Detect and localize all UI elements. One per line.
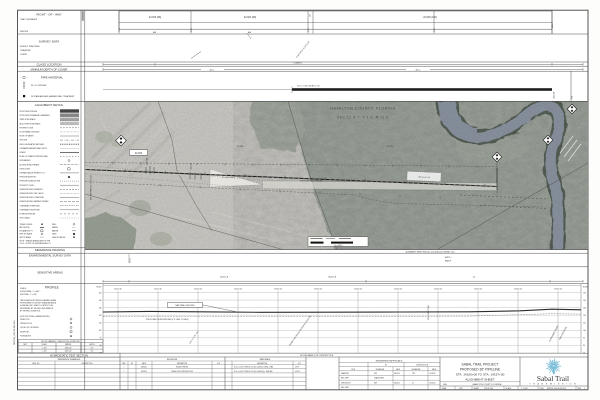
svg-text:TRACT NUMBERS: TRACT NUMBERS xyxy=(20,18,38,21)
svg-text:UNDERGROUND REPEATER: UNDERGROUND REPEATER xyxy=(20,188,44,191)
svg-text:USE:: USE: xyxy=(443,384,448,386)
svg-text:ALIGNMENT DETAIL: ALIGNMENT DETAIL xyxy=(35,103,64,107)
svg-text:ISSUED FOR BID: ISSUED FOR BID xyxy=(176,367,189,369)
svg-text:PROPERTY LINE 2: PROPERTY LINE 2 xyxy=(20,185,35,187)
svg-text:BLOCK DRAWING - TRENCH PLUG LO: BLOCK DRAWING - TRENCH PLUG LOCATIONS xyxy=(42,340,81,343)
svg-text:140: 140 xyxy=(99,300,102,302)
svg-text:14130+00: 14130+00 xyxy=(274,288,282,290)
svg-text:PROPOSED 36-IN PIPELINE: PROPOSED 36-IN PIPELINE xyxy=(300,181,323,183)
svg-text:MILEPOINT: MILEPOINT xyxy=(20,331,29,333)
svg-text:STREAM/RIVER/WETLAND LIMITS: STREAM/RIVER/WETLAND LIMITS xyxy=(20,147,48,150)
svg-text:130: 130 xyxy=(99,307,102,309)
svg-text:SABAL TRAIL PROJECT: SABAL TRAIL PROJECT xyxy=(462,363,499,367)
svg-text:14116+50: 14116+50 xyxy=(190,163,192,170)
svg-text:120: 120 xyxy=(583,315,586,317)
svg-text:SCALE: SCALE xyxy=(506,387,512,390)
svg-text:36 I.D. PIPELINE: 36 I.D. PIPELINE xyxy=(31,85,47,87)
svg-text:ANT MOUND: ANT MOUND xyxy=(20,226,31,229)
svg-text:HADDF: HADDF xyxy=(445,260,452,263)
svg-text:110: 110 xyxy=(99,323,102,325)
svg-text:PIPE STORAGE: PIPE STORAGE xyxy=(20,233,33,236)
svg-text:EDGE OF WATER: EDGE OF WATER xyxy=(20,135,35,138)
svg-text:14150+00: 14150+00 xyxy=(434,288,442,290)
svg-text:22,925: 22,925 xyxy=(387,146,394,148)
svg-text:36 in.: 36 in. xyxy=(415,69,421,71)
svg-text:SCALE:: SCALE: xyxy=(20,287,27,290)
svg-text:ELEV.: ELEV. xyxy=(97,287,102,289)
svg-text:4,971 LF: 4,971 LF xyxy=(295,371,300,373)
svg-text:HOLLOWAY ROAD: HOLLOWAY ROAD xyxy=(427,305,430,320)
svg-text:REFERENCE DRAWING: REFERENCE DRAWING xyxy=(35,248,65,252)
svg-text:130: 130 xyxy=(583,307,586,309)
svg-text:14145+00: 14145+00 xyxy=(394,288,402,290)
svg-text:PIPELINE MILEPOST: PIPELINE MILEPOST xyxy=(20,177,37,179)
svg-text:14125+00: 14125+00 xyxy=(234,288,242,290)
svg-text:RIGHT - OF - WAY: RIGHT - OF - WAY xyxy=(36,13,61,17)
svg-text:FENCES: FENCES xyxy=(20,31,29,33)
svg-text:MARSH: MARSH xyxy=(52,229,59,232)
svg-text:100: 100 xyxy=(583,330,586,332)
svg-text:22,923 (98): 22,923 (98) xyxy=(149,16,161,19)
svg-text:PROFILE: PROFILE xyxy=(45,286,59,290)
svg-text:TITLE: TITLE xyxy=(351,369,355,371)
svg-text:ALIGNMENT SHEET SM2135_200-36-: ALIGNMENT SHEET SM2135_200-36-W1-215 (SH… xyxy=(406,250,455,253)
svg-text:P.O.B.: P.O.B. xyxy=(434,27,436,32)
svg-text:SEC 12 & 7, T 1 S, R 11 E: SEC 12 & 7, T 1 S, R 11 E xyxy=(337,116,389,120)
svg-text:BY: BY xyxy=(385,365,387,367)
svg-text:HAMILTON COUNTY, FLORIDA: HAMILTON COUNTY, FLORIDA xyxy=(473,383,502,386)
svg-text:1 - 100: 1 - 100 xyxy=(42,347,47,349)
svg-text:U/G STREAM CROSSING: U/G STREAM CROSSING xyxy=(20,131,41,134)
svg-text:TEST LEADS: TEST LEADS xyxy=(20,217,31,220)
svg-text:WATER: WATER xyxy=(52,226,59,229)
svg-text:HYDROSTATIC TEST SECTION: HYDROSTATIC TEST SECTION xyxy=(50,353,88,357)
svg-text:NOT RELEASED FOR CONSTRUCTION: NOT RELEASED FOR CONSTRUCTION xyxy=(300,354,334,357)
svg-text:MINIMUM DEPTH OF COVER: MINIMUM DEPTH OF COVER xyxy=(31,67,68,71)
svg-text:QTY: QTY xyxy=(298,363,301,365)
svg-text:216 OF 240: 216 OF 240 xyxy=(484,388,493,390)
svg-text:WWTF /: WWTF / xyxy=(445,257,452,259)
svg-text:14-B-11-B: 14-B-11-B xyxy=(328,277,337,279)
svg-text:SM2135_200-36-W1-216: SM2135_200-36-W1-216 xyxy=(547,388,566,390)
svg-text:PROPOSED PIPELINE: PROPOSED PIPELINE xyxy=(20,111,39,113)
svg-text:150: 150 xyxy=(583,292,586,294)
svg-text:CURVE: CURVE xyxy=(20,54,28,56)
svg-text:2017: 2017 xyxy=(459,388,463,390)
svg-text:YEAR: YEAR xyxy=(442,387,447,390)
svg-text:80: 80 xyxy=(100,345,102,347)
svg-text:22,926: 22,926 xyxy=(513,133,520,135)
svg-text:14110+00: 14110+00 xyxy=(114,288,121,290)
svg-text:ISSUED FOR CONSTRUCTION: ISSUED FOR CONSTRUCTION xyxy=(171,371,193,373)
svg-text:1: 1 xyxy=(584,388,585,390)
svg-text:3'-0": 3'-0" xyxy=(91,347,94,349)
svg-text:ADDL TEMP WORKSPACE: ADDL TEMP WORKSPACE xyxy=(20,122,42,125)
svg-text:FOUNDATION: FOUNDATION xyxy=(20,335,32,338)
svg-text:06/10/15: 06/10/15 xyxy=(430,382,436,384)
svg-text:14115+00: 14115+00 xyxy=(154,288,161,290)
svg-text:PROPOSED 36-IN PIPELINE (3'-0": PROPOSED 36-IN PIPELINE (3'-0" MIN. COVE… xyxy=(146,319,189,321)
svg-text:22,924: 22,924 xyxy=(237,146,244,148)
svg-text:MJF: MJF xyxy=(374,382,377,384)
svg-text:14155+00: 14155+00 xyxy=(474,288,482,290)
svg-text:REFERENCE DRAWINGS: REFERENCE DRAWINGS xyxy=(58,358,81,361)
svg-text:14-B-11-B: 14-B-11-B xyxy=(220,277,229,279)
svg-text:1 - 100: 1 - 100 xyxy=(42,351,47,353)
svg-text:OVERHEAD TELEPHONE: OVERHEAD TELEPHONE xyxy=(20,208,41,211)
svg-text:100: 100 xyxy=(99,330,102,332)
svg-text:SEPTIC AREA: SEPTIC AREA xyxy=(20,236,32,239)
svg-text:DESCRIPTION: DESCRIPTION xyxy=(82,363,94,365)
svg-text:SENSITIVE AREAS: SENSITIVE AREAS xyxy=(37,271,63,275)
svg-text:229 LF: 229 LF xyxy=(295,367,299,369)
svg-text:14157+00: 14157+00 xyxy=(65,351,72,353)
svg-text:STA. 14105+00 TO STA. 14157+00: STA. 14105+00 TO STA. 14157+00 xyxy=(456,373,505,377)
svg-text:P.I. 14121+34.56: P.I. 14121+34.56 xyxy=(222,177,235,179)
svg-text:3'-0": 3'-0" xyxy=(91,351,94,353)
svg-text:1" = 800': 1" = 800' xyxy=(521,388,528,390)
svg-text:TEST: TEST xyxy=(23,344,27,346)
svg-text:P.O.B.: P.O.B. xyxy=(119,27,121,32)
svg-text:TRENCH PLUG: TRENCH PLUG xyxy=(20,323,33,325)
svg-text:UNDERGROUND LINE CHECK: UNDERGROUND LINE CHECK xyxy=(20,193,45,195)
svg-text:ENG. DEPT.: ENG. DEPT. xyxy=(341,387,350,389)
svg-text:CLASS 1: CLASS 1 xyxy=(294,62,304,65)
svg-text:DESCRIPTION: DESCRIPTION xyxy=(177,363,187,365)
svg-text:08/14/15: 08/14/15 xyxy=(141,371,147,373)
svg-text:SM2135_200-36-W1-216: SM2135_200-36-W1-216 xyxy=(14,320,16,345)
svg-text:14140+00: 14140+00 xyxy=(354,288,362,290)
svg-text:SHEET: SHEET xyxy=(474,388,480,390)
svg-text:HL-B-1: HL-B-1 xyxy=(130,258,132,263)
svg-text:STRUCTURE: STRUCTURE xyxy=(20,168,31,170)
svg-text:14165+00: 14165+00 xyxy=(554,288,562,290)
svg-text:STREAM GAUGE SEVERITY 1/2: STREAM GAUGE SEVERITY 1/2 xyxy=(20,172,45,175)
svg-text:DWG. NO.: DWG. NO. xyxy=(32,363,40,365)
svg-text:MATERIALS: MATERIALS xyxy=(260,358,271,361)
svg-text:14105+00: 14105+00 xyxy=(65,347,72,349)
svg-text:REVISIONS: REVISIONS xyxy=(167,359,178,361)
svg-text:DEPTH: DEPTH xyxy=(89,344,94,346)
svg-text:CONSTRUCTION: CONSTRUCTION xyxy=(416,365,428,367)
svg-text:14157+00: 14157+00 xyxy=(554,92,556,99)
svg-text:UNDERGROUND POWERLINE: UNDERGROUND POWERLINE xyxy=(20,197,45,199)
svg-text:22,924 (99): 22,924 (99) xyxy=(244,16,256,19)
svg-text:DWG: DWG xyxy=(540,388,545,390)
svg-text:06/10/15: 06/10/15 xyxy=(430,373,436,375)
svg-text:CHECKED BY: CHECKED BY xyxy=(341,382,351,384)
svg-text:800' GAP PARCEL NO. 22,923: 800' GAP PARCEL NO. 22,923 xyxy=(90,175,93,200)
svg-text:UNDERGROUND SANITARY SEWER: UNDERGROUND SANITARY SEWER xyxy=(20,200,50,203)
svg-text:T R A N S M I S S I O N: T R A N S M I S S I O N xyxy=(529,383,576,386)
svg-text:08/04/15: 08/04/15 xyxy=(141,367,147,369)
svg-text:ENGINEERING APPROVALS: ENGINEERING APPROVALS xyxy=(376,359,403,362)
svg-text:PIPELINE EQUATION STA: PIPELINE EQUATION STA xyxy=(20,180,41,183)
svg-text:14135+00: 14135+00 xyxy=(314,288,322,290)
svg-text:1 in = 800 ft: 1 in = 800 ft xyxy=(334,244,343,247)
svg-text:ROADS: ROADS xyxy=(20,151,27,154)
svg-text:TREES / FENCE: TREES / FENCE xyxy=(20,224,34,226)
svg-text:FIELD DELINEATED WETLAND: FIELD DELINEATED WETLAND xyxy=(20,143,45,146)
svg-text:22,9: 22,9 xyxy=(310,14,312,17)
svg-text:22,923: 22,923 xyxy=(135,152,143,155)
svg-text:PROPOSED PERMANENT EASEMENT: PROPOSED PERMANENT EASEMENT xyxy=(20,114,50,117)
svg-text:REV: REV xyxy=(122,363,125,365)
svg-text:110: 110 xyxy=(583,323,586,325)
svg-text:HAMILTON COUNTY, FLORIDA: HAMILTON COUNTY, FLORIDA xyxy=(330,106,395,111)
svg-text:HORIZONTAL: 1" = 800': HORIZONTAL: 1" = 800' xyxy=(20,290,40,293)
svg-text:ALIGNMENT SHEET: ALIGNMENT SHEET xyxy=(465,377,494,381)
svg-text:06/10/15: 06/10/15 xyxy=(394,382,400,384)
svg-text:R/W MARKER: R/W MARKER xyxy=(20,159,32,162)
svg-text:90: 90 xyxy=(583,338,585,340)
svg-text:80: 80 xyxy=(583,345,585,347)
svg-text:Sabal Trail: Sabal Trail xyxy=(537,374,569,383)
svg-text:DESCRIPTION: DESCRIPTION xyxy=(257,363,267,365)
svg-text:BY: BY xyxy=(131,363,133,365)
svg-text:90: 90 xyxy=(100,338,102,340)
svg-text:22,925 (100): 22,925 (100) xyxy=(423,16,437,19)
svg-text:14120+00: 14120+00 xyxy=(194,288,202,290)
svg-text:VERTICAL: 1" = 100': VERTICAL: 1" = 100' xyxy=(20,293,37,296)
svg-text:ENG. DEPT.: ENG. DEPT. xyxy=(341,378,350,380)
svg-text:PROPERTY LINE: PROPERTY LINE xyxy=(20,127,34,129)
svg-text:ENVIRONMENTAL SURVEY DATA: ENVIRONMENTAL SURVEY DATA xyxy=(29,254,71,258)
svg-text:BY THE FIELD SURVEYOR.: BY THE FIELD SURVEYOR. xyxy=(20,310,41,312)
svg-text:36 in.: 36 in. xyxy=(209,69,215,71)
svg-text:70: 70 xyxy=(583,353,585,355)
svg-text:TEMP WORKSPACE: TEMP WORKSPACE xyxy=(20,118,37,121)
svg-text:P.O.B.: P.O.B. xyxy=(191,27,193,32)
svg-text:P.O.B.: P.O.B. xyxy=(308,27,310,32)
svg-text:ACCESS ROAD PRIVATE: ACCESS ROAD PRIVATE xyxy=(20,163,41,166)
svg-text:14112+00: 14112+00 xyxy=(146,158,148,165)
svg-text:MJF: MJF xyxy=(374,373,377,375)
svg-text:U/G BLOCK CROSSING: U/G BLOCK CROSSING xyxy=(20,327,39,329)
svg-text:CANOPY ABOVE: CANOPY ABOVE xyxy=(52,236,66,239)
svg-text:NOTE PROPOSED GRADE/EXISTING: NOTE PROPOSED GRADE/EXISTING xyxy=(20,315,50,318)
svg-text:R/W LINE: R/W LINE xyxy=(20,140,28,142)
svg-text:T-4: T-4 xyxy=(473,277,476,279)
svg-text:EXCAVATION PT: EXCAVATION PT xyxy=(20,229,33,232)
svg-text:WELL: WELL xyxy=(52,224,57,226)
svg-text:PROPOSED 36" PIPELINE: PROPOSED 36" PIPELINE xyxy=(460,368,501,372)
svg-text:14160+00: 14160+00 xyxy=(514,288,522,290)
svg-text:P.O.B. = POINT OF BEGINNING AN: P.O.B. = POINT OF BEGINNING AND P.I. xyxy=(20,242,52,245)
svg-text:140: 140 xyxy=(583,300,586,302)
svg-text:OVERHEAD POWERLINE: OVERHEAD POWERLINE xyxy=(20,204,41,207)
svg-text:FOREIGN PIPELINE: FOREIGN PIPELINE xyxy=(20,214,37,216)
svg-text:SURVEY DATA: SURVEY DATA xyxy=(39,40,60,44)
svg-text:36 STANDARD AND HEAVIER WALL T: 36 STANDARD AND HEAVIER WALL TREATMENT xyxy=(31,95,75,98)
svg-text:120: 120 xyxy=(99,315,102,317)
svg-text:DIRECTION: DIRECTION xyxy=(20,319,30,321)
svg-text:NATURAL GROUND: NATURAL GROUND xyxy=(175,304,195,307)
svg-text:CLASS LOCATION: CLASS LOCATION xyxy=(37,62,62,66)
svg-text:EDGE OF TRANSPORTATION LANE: EDGE OF TRANSPORTATION LANE xyxy=(20,155,49,158)
svg-text:SURVEY STATIONED: SURVEY STATIONED xyxy=(20,45,40,48)
svg-text:06/10/15: 06/10/15 xyxy=(394,373,400,375)
svg-text:PIPE MATERIAL: PIPE MATERIAL xyxy=(41,76,64,80)
svg-text:ELEV.: ELEV. xyxy=(583,287,588,289)
svg-text:150: 150 xyxy=(99,292,102,294)
svg-text:TRAVERSE: TRAVERSE xyxy=(20,49,31,52)
